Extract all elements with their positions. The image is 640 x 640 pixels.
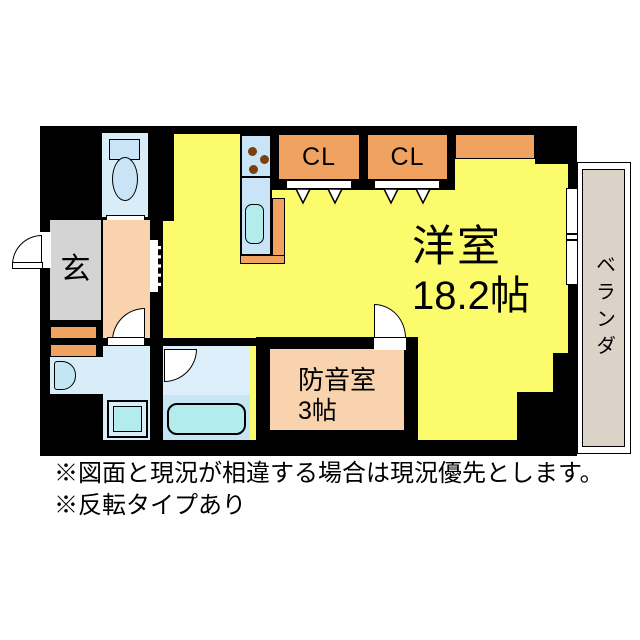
wall-notch-upper-left: [163, 134, 174, 221]
washroom-door-leaf: [107, 337, 145, 346]
closet-2-door-triangles: [374, 188, 440, 205]
bathroom-top-wall: [150, 338, 258, 346]
kitchen-stove-icon: [240, 134, 272, 178]
corner-wall-top-right: [535, 134, 568, 164]
closet-1-door-triangles: [286, 188, 352, 205]
soundproof-room-name: 防音室: [298, 367, 404, 393]
main-room-name: 洋室: [412, 226, 530, 269]
corner-step-2: [517, 392, 568, 440]
note-line-1: ※図面と現況が相違する場合は現況優先とします。: [54, 462, 604, 486]
floorplan-canvas: 玄 CL CL: [0, 0, 640, 640]
bathtub-icon: [167, 403, 246, 435]
closet-1: CL: [278, 134, 360, 180]
entrance-door-arc: [12, 235, 42, 265]
soundproof-room: 防音室 3帖: [270, 349, 404, 430]
sliding-door: [150, 240, 161, 292]
soundproof-doorway: [374, 337, 406, 350]
kitchen-sink-icon: [245, 204, 264, 244]
kitchen-counter-edge-bottom: [240, 255, 285, 264]
genkan-label: 玄: [61, 255, 91, 285]
veranda-label: ベランダ: [594, 254, 614, 362]
shoe-cabinet-lower: [50, 344, 97, 357]
main-room-label: 洋室 18.2帖: [412, 226, 530, 316]
shoe-cabinet-upper: [50, 326, 97, 339]
main-room-size: 18.2帖: [412, 276, 530, 316]
closet-1-label: CL: [302, 145, 336, 170]
genkan: 玄: [50, 220, 101, 320]
closet-2: CL: [367, 134, 448, 180]
toilet-bowl-icon: [112, 157, 138, 201]
entrance-door-leaf: [12, 262, 43, 269]
washing-machine-drum: [113, 406, 142, 432]
soundproof-room-size: 3帖: [298, 399, 404, 424]
closet-2-label: CL: [391, 145, 425, 170]
veranda: ベランダ: [582, 169, 625, 447]
top-storage-strip: [455, 134, 535, 159]
note-line-2: ※反転タイプあり: [54, 494, 246, 518]
